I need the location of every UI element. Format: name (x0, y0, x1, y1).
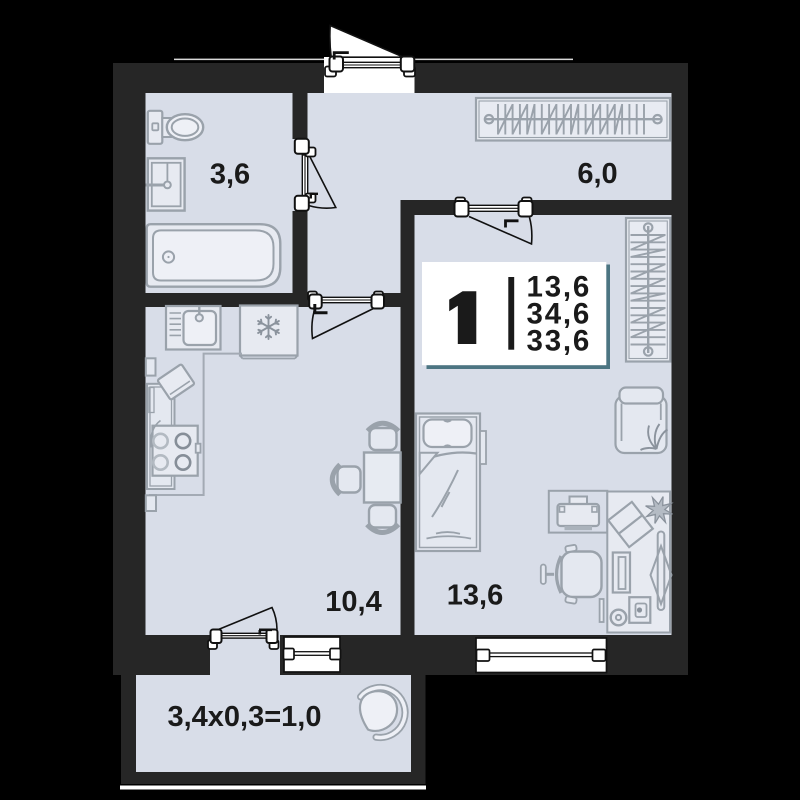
svg-text:33,6: 33,6 (527, 324, 592, 357)
svg-text:6,0: 6,0 (577, 158, 617, 190)
svg-text:10,4: 10,4 (325, 586, 381, 618)
svg-text:3,4x0,3=1,0: 3,4x0,3=1,0 (167, 701, 321, 733)
svg-text:13,6: 13,6 (447, 580, 503, 612)
svg-text:3,6: 3,6 (210, 159, 250, 191)
